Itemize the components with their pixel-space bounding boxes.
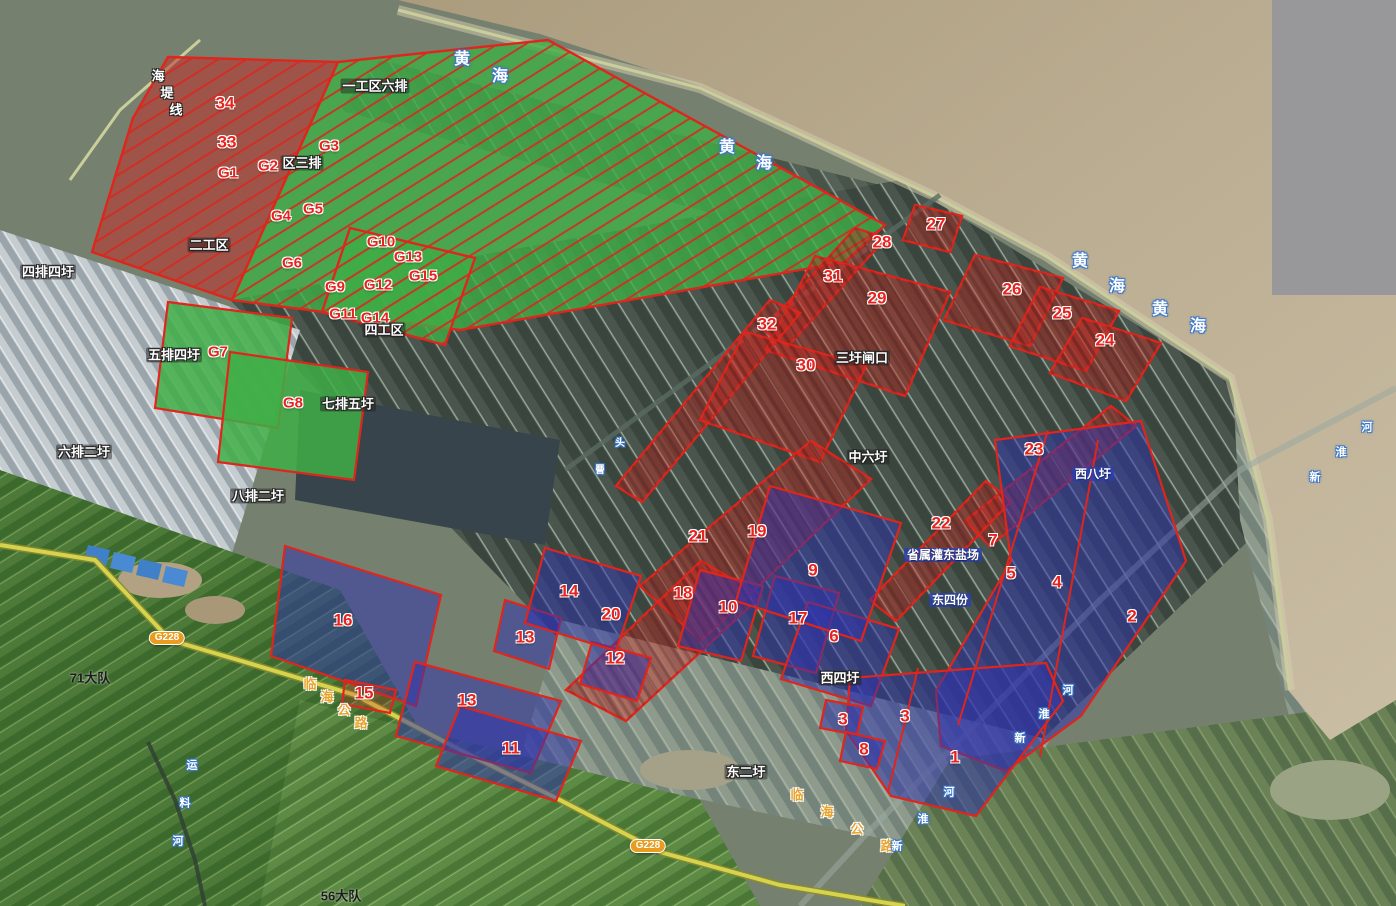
map-canvas[interactable]: 3433G1G2G3G4G5G6G9G10G12G13G15G11G14G7G8… bbox=[0, 0, 1396, 906]
parcel-3-left[interactable] bbox=[820, 700, 863, 735]
parcel-overlay-layer bbox=[0, 0, 1396, 906]
parcel-11[interactable] bbox=[436, 706, 581, 801]
parcel-G8[interactable] bbox=[218, 352, 368, 480]
